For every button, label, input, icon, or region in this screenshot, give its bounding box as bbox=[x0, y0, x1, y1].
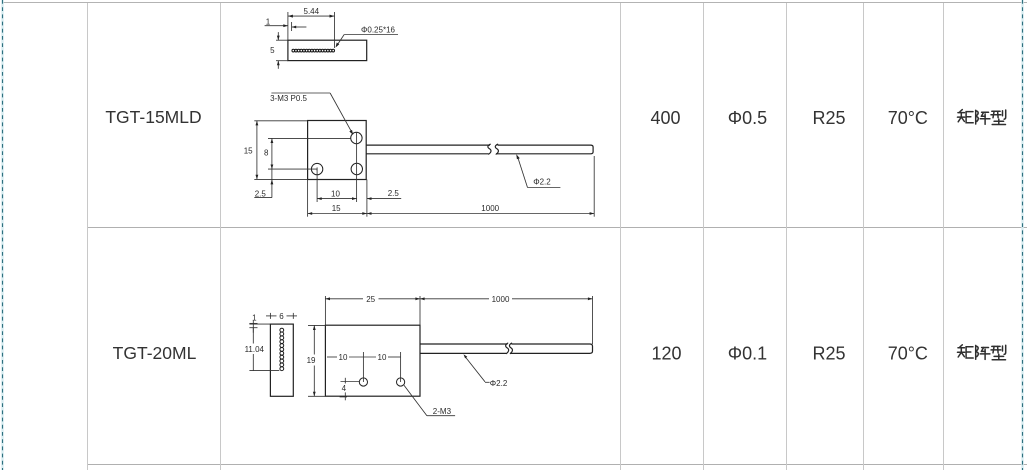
svg-text:5: 5 bbox=[270, 46, 275, 55]
svg-text:10: 10 bbox=[331, 189, 340, 198]
svg-text:10: 10 bbox=[339, 353, 348, 362]
svg-text:400: 400 bbox=[650, 108, 680, 128]
svg-text:15: 15 bbox=[332, 204, 341, 213]
svg-text:25: 25 bbox=[366, 295, 375, 304]
svg-text:19: 19 bbox=[307, 356, 316, 365]
svg-text:120: 120 bbox=[651, 343, 681, 363]
svg-text:R25: R25 bbox=[812, 343, 845, 363]
svg-text:1000: 1000 bbox=[492, 295, 510, 304]
svg-text:5.44: 5.44 bbox=[304, 7, 320, 16]
svg-text:Φ0.1: Φ0.1 bbox=[728, 343, 767, 363]
svg-text:Φ0.25*16: Φ0.25*16 bbox=[361, 25, 396, 34]
svg-text:1000: 1000 bbox=[481, 204, 499, 213]
svg-text:3-M3 P0.5: 3-M3 P0.5 bbox=[270, 94, 307, 103]
svg-text:15: 15 bbox=[244, 146, 253, 155]
svg-text:2.5: 2.5 bbox=[388, 189, 400, 198]
svg-text:70°C: 70°C bbox=[888, 343, 928, 363]
svg-text:2-M3: 2-M3 bbox=[433, 407, 452, 416]
svg-text:Φ2.2: Φ2.2 bbox=[490, 379, 508, 388]
svg-text:TGT-15MLD: TGT-15MLD bbox=[105, 107, 201, 127]
svg-text:TGT-20ML: TGT-20ML bbox=[113, 343, 197, 363]
svg-text:Φ0.5: Φ0.5 bbox=[728, 108, 767, 128]
svg-text:Φ2.2: Φ2.2 bbox=[533, 178, 551, 187]
svg-text:70°C: 70°C bbox=[888, 108, 928, 128]
svg-text:R25: R25 bbox=[812, 108, 845, 128]
svg-text:1: 1 bbox=[252, 313, 257, 322]
svg-text:11.04: 11.04 bbox=[245, 345, 265, 354]
svg-text:8: 8 bbox=[264, 149, 269, 158]
svg-text:10: 10 bbox=[378, 353, 387, 362]
svg-text:4: 4 bbox=[342, 384, 347, 393]
svg-text:6: 6 bbox=[279, 312, 284, 321]
